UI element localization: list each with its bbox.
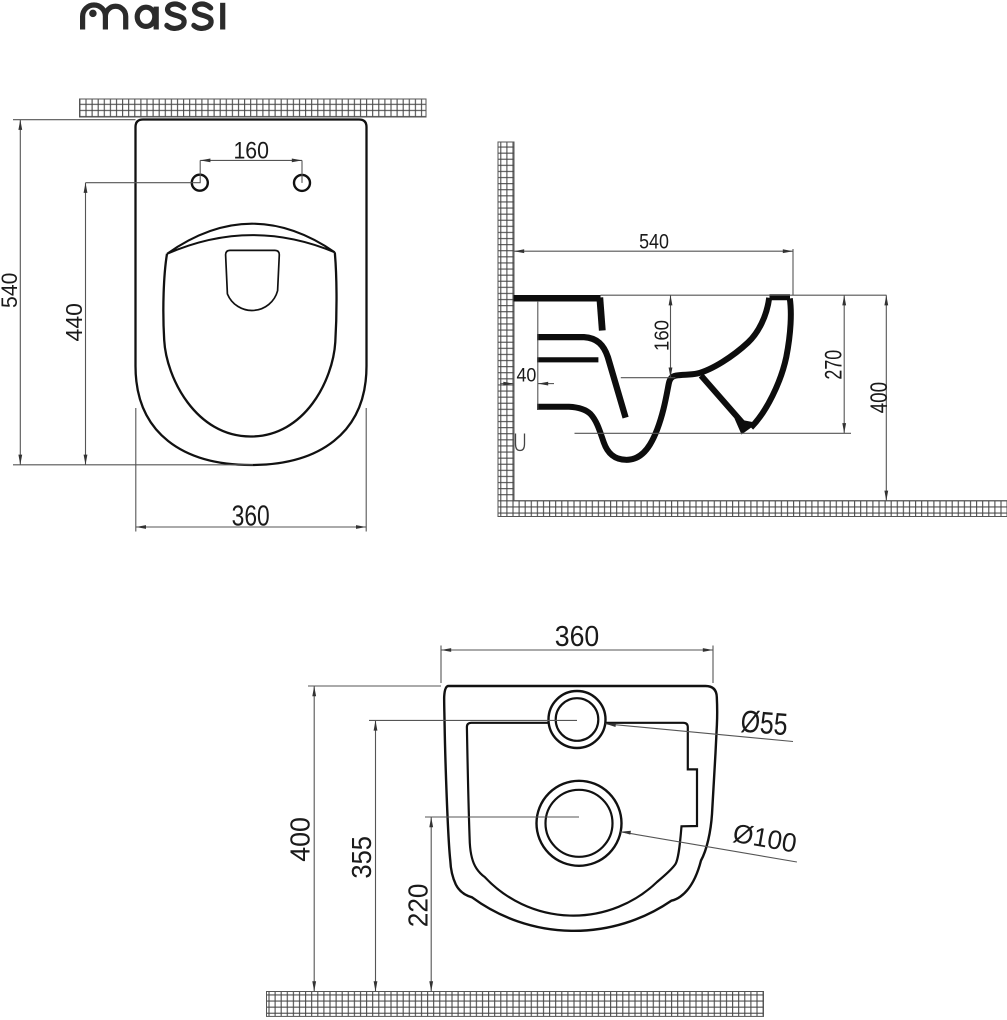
svg-text:220: 220 [403,884,434,928]
svg-text:540: 540 [639,229,669,253]
svg-text:400: 400 [866,382,893,413]
svg-text:270: 270 [821,350,848,380]
svg-text:360: 360 [555,621,600,653]
svg-text:160: 160 [652,320,674,351]
svg-text:355: 355 [346,836,377,879]
svg-text:Ø55: Ø55 [739,704,789,743]
svg-text:440: 440 [61,303,87,341]
svg-text:400: 400 [285,817,316,862]
svg-text:540: 540 [0,273,22,308]
svg-text:40: 40 [516,365,536,387]
svg-text:160: 160 [233,137,269,164]
svg-text:360: 360 [232,501,270,533]
